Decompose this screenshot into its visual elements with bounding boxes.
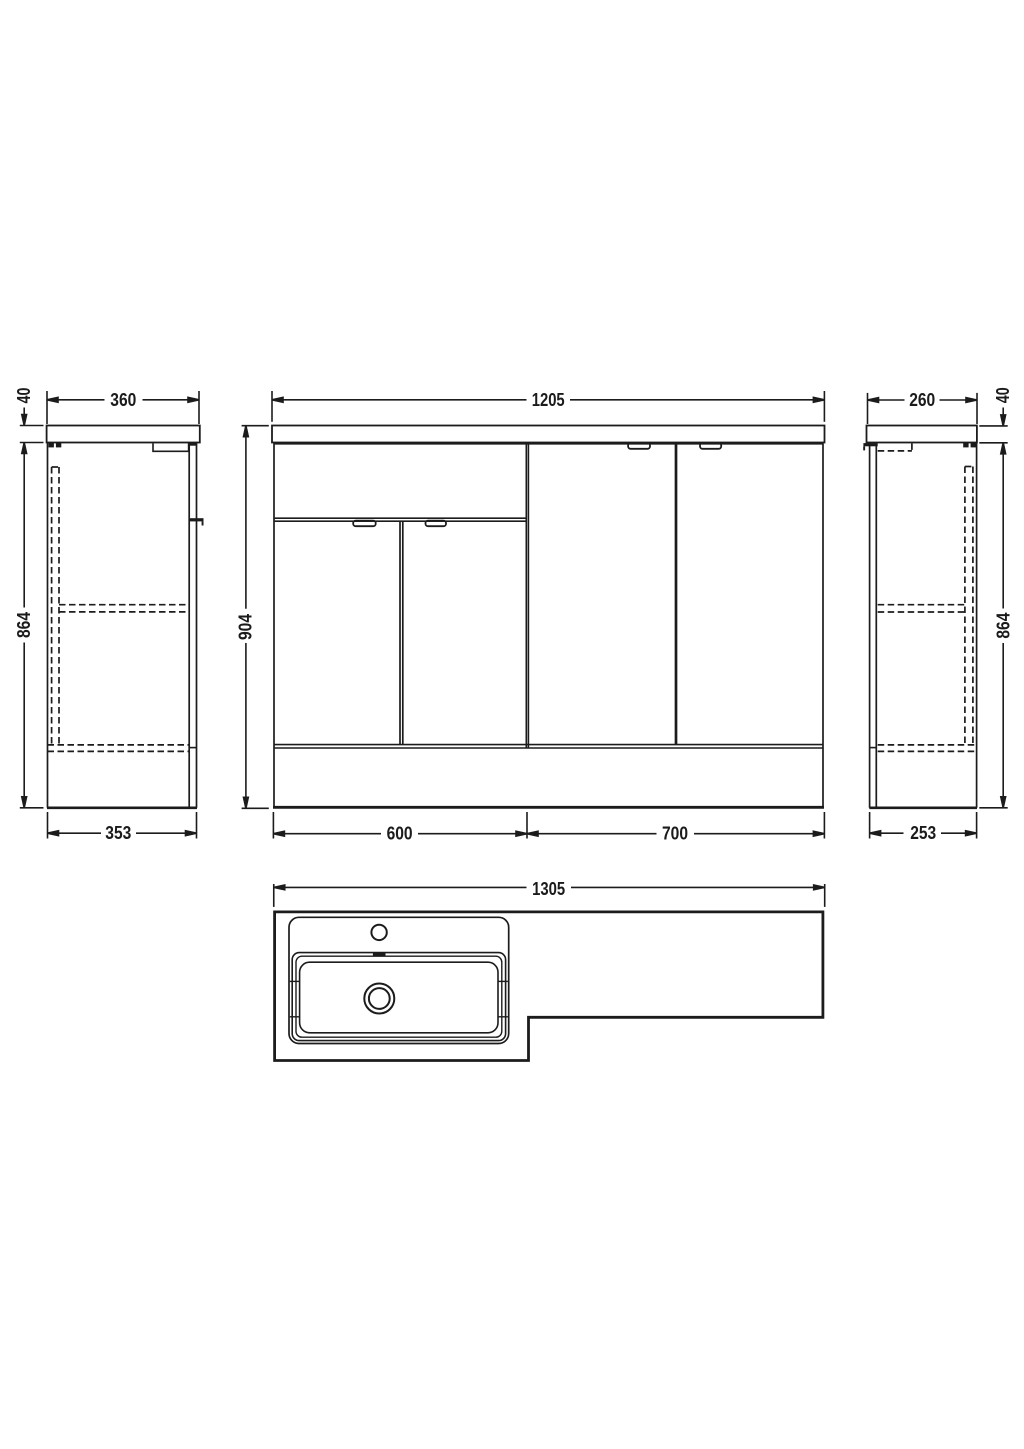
svg-text:864: 864 bbox=[14, 612, 34, 638]
svg-text:864: 864 bbox=[994, 613, 1014, 639]
svg-text:1205: 1205 bbox=[532, 390, 565, 410]
svg-text:1305: 1305 bbox=[532, 879, 565, 899]
svg-text:40: 40 bbox=[14, 388, 34, 404]
svg-text:353: 353 bbox=[105, 823, 131, 843]
svg-text:904: 904 bbox=[236, 614, 256, 640]
svg-text:360: 360 bbox=[110, 390, 136, 410]
svg-text:40: 40 bbox=[993, 387, 1013, 403]
svg-text:700: 700 bbox=[662, 824, 688, 844]
svg-text:253: 253 bbox=[910, 823, 936, 843]
svg-text:260: 260 bbox=[909, 390, 935, 410]
svg-text:600: 600 bbox=[387, 824, 413, 844]
